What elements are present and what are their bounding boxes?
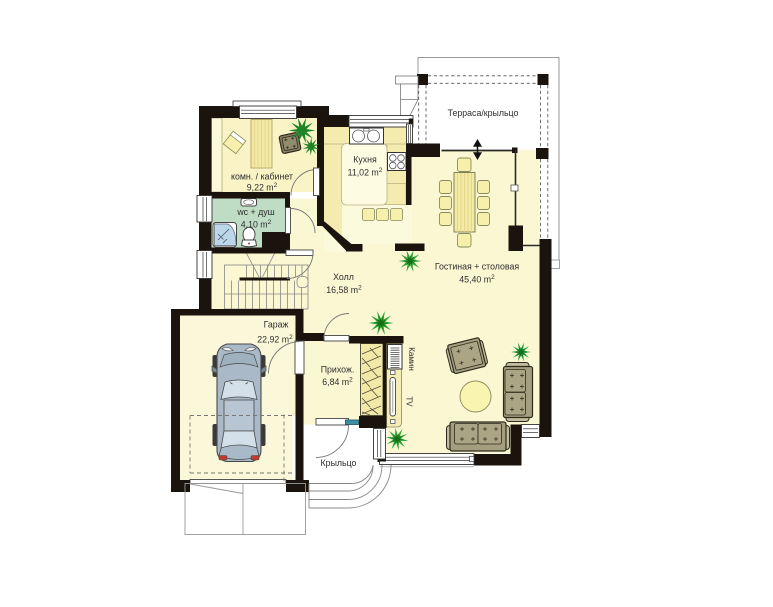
- svg-text:Кухня: Кухня: [353, 155, 377, 165]
- svg-text:Гостиная + столовая: Гостиная + столовая: [435, 262, 520, 272]
- svg-text:45,40 m2: 45,40 m2: [459, 274, 495, 285]
- svg-text:Холл: Холл: [333, 272, 354, 282]
- svg-text:4,10 m2: 4,10 m2: [241, 219, 272, 230]
- svg-text:wc + душ: wc + душ: [236, 207, 274, 217]
- svg-text:22,92 m2: 22,92 m2: [257, 334, 293, 345]
- svg-text:6,84 m2: 6,84 m2: [322, 377, 353, 388]
- svg-text:Терраса/крыльцо: Терраса/крыльцо: [448, 108, 519, 118]
- svg-text:Камин: Камин: [407, 347, 416, 371]
- svg-text:11,02 m2: 11,02 m2: [348, 167, 383, 178]
- svg-text:TV: TV: [405, 396, 414, 407]
- svg-text:9,22 m2: 9,22 m2: [247, 182, 278, 193]
- svg-text:Крыльцо: Крыльцо: [321, 458, 357, 468]
- svg-text:Гараж: Гараж: [264, 320, 289, 330]
- svg-text:16,58 m2: 16,58 m2: [326, 285, 362, 296]
- svg-text:Прихож.: Прихож.: [321, 365, 355, 375]
- svg-text:комн. / кабинет: комн. / кабинет: [231, 172, 293, 182]
